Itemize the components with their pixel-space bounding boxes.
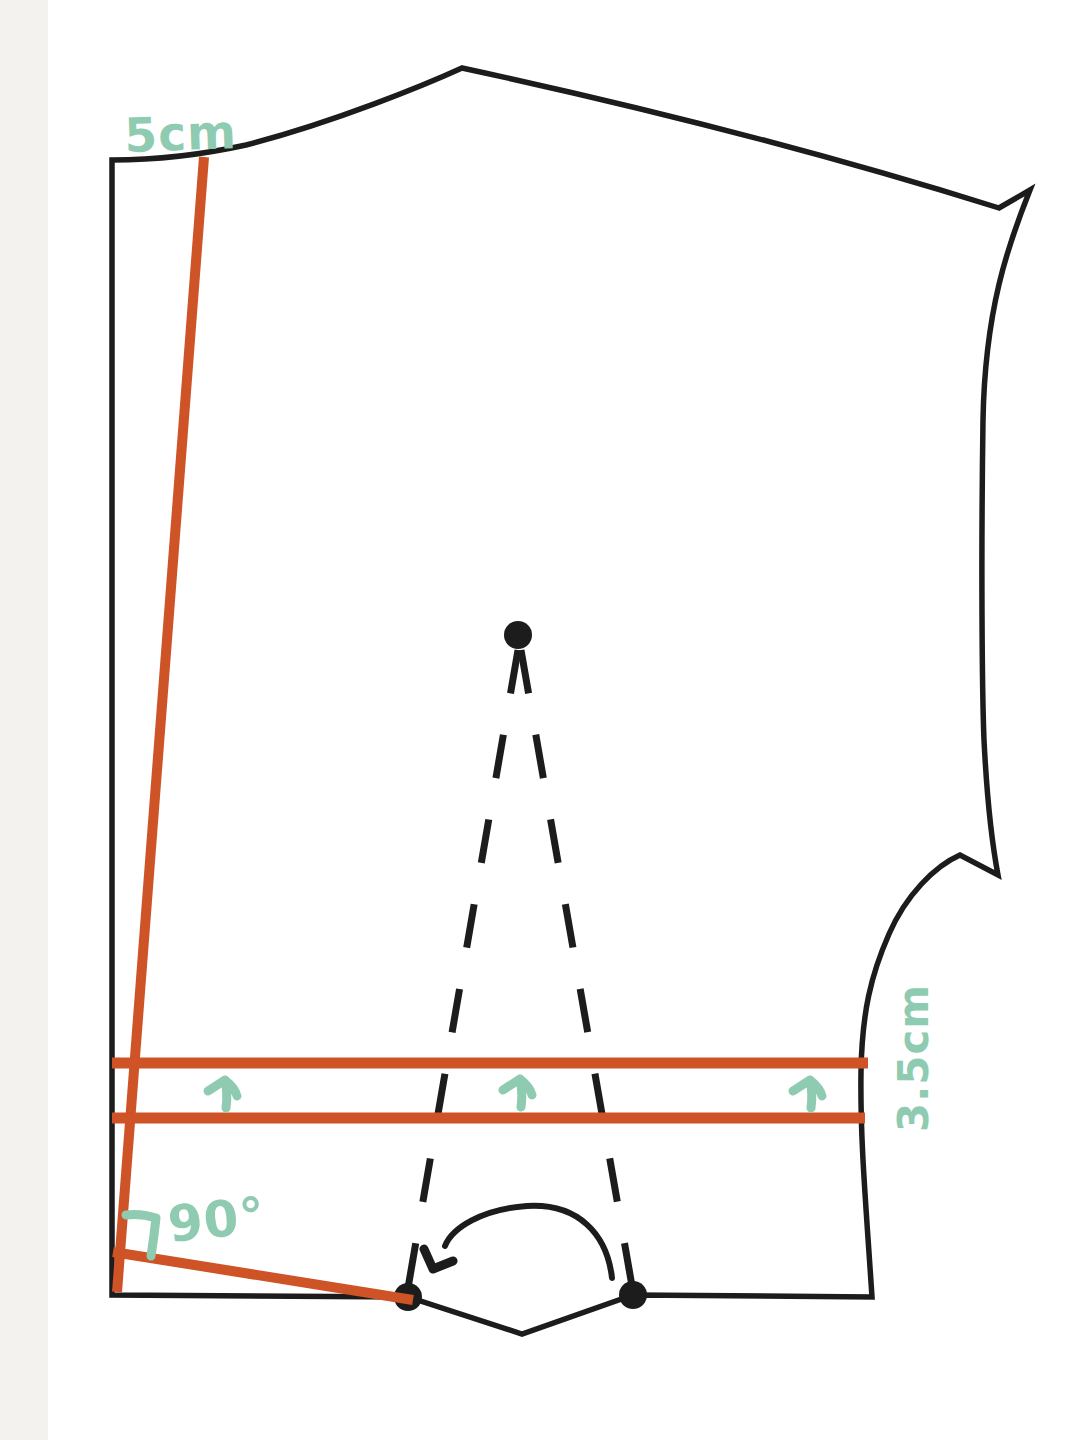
dart-leg-left-dashed xyxy=(408,650,518,1288)
arrow-up-icon xyxy=(793,1080,822,1108)
pattern-diagram: 5cm 3.5cm 90° xyxy=(0,0,1080,1440)
arrow-up-icon xyxy=(208,1080,237,1108)
dart-apex-dot xyxy=(504,621,532,649)
diagram-canvas: 5cm 3.5cm 90° xyxy=(0,0,1080,1440)
adjustment-lines xyxy=(112,157,868,1300)
pattern-outline xyxy=(112,68,1030,1334)
dart-leg-right-dashed xyxy=(521,650,632,1286)
dart-point-right-dot xyxy=(619,1281,647,1309)
rotate-arrow-head xyxy=(424,1249,453,1269)
rotate-arrow-arc xyxy=(445,1206,612,1278)
label-shoulder-measure: 5cm xyxy=(123,104,237,163)
label-side-measure: 3.5cm xyxy=(889,984,938,1132)
arrow-up-icon xyxy=(503,1079,532,1107)
rotate-arrow-icon xyxy=(424,1206,612,1278)
label-angle-measure: 90° xyxy=(165,1186,268,1254)
